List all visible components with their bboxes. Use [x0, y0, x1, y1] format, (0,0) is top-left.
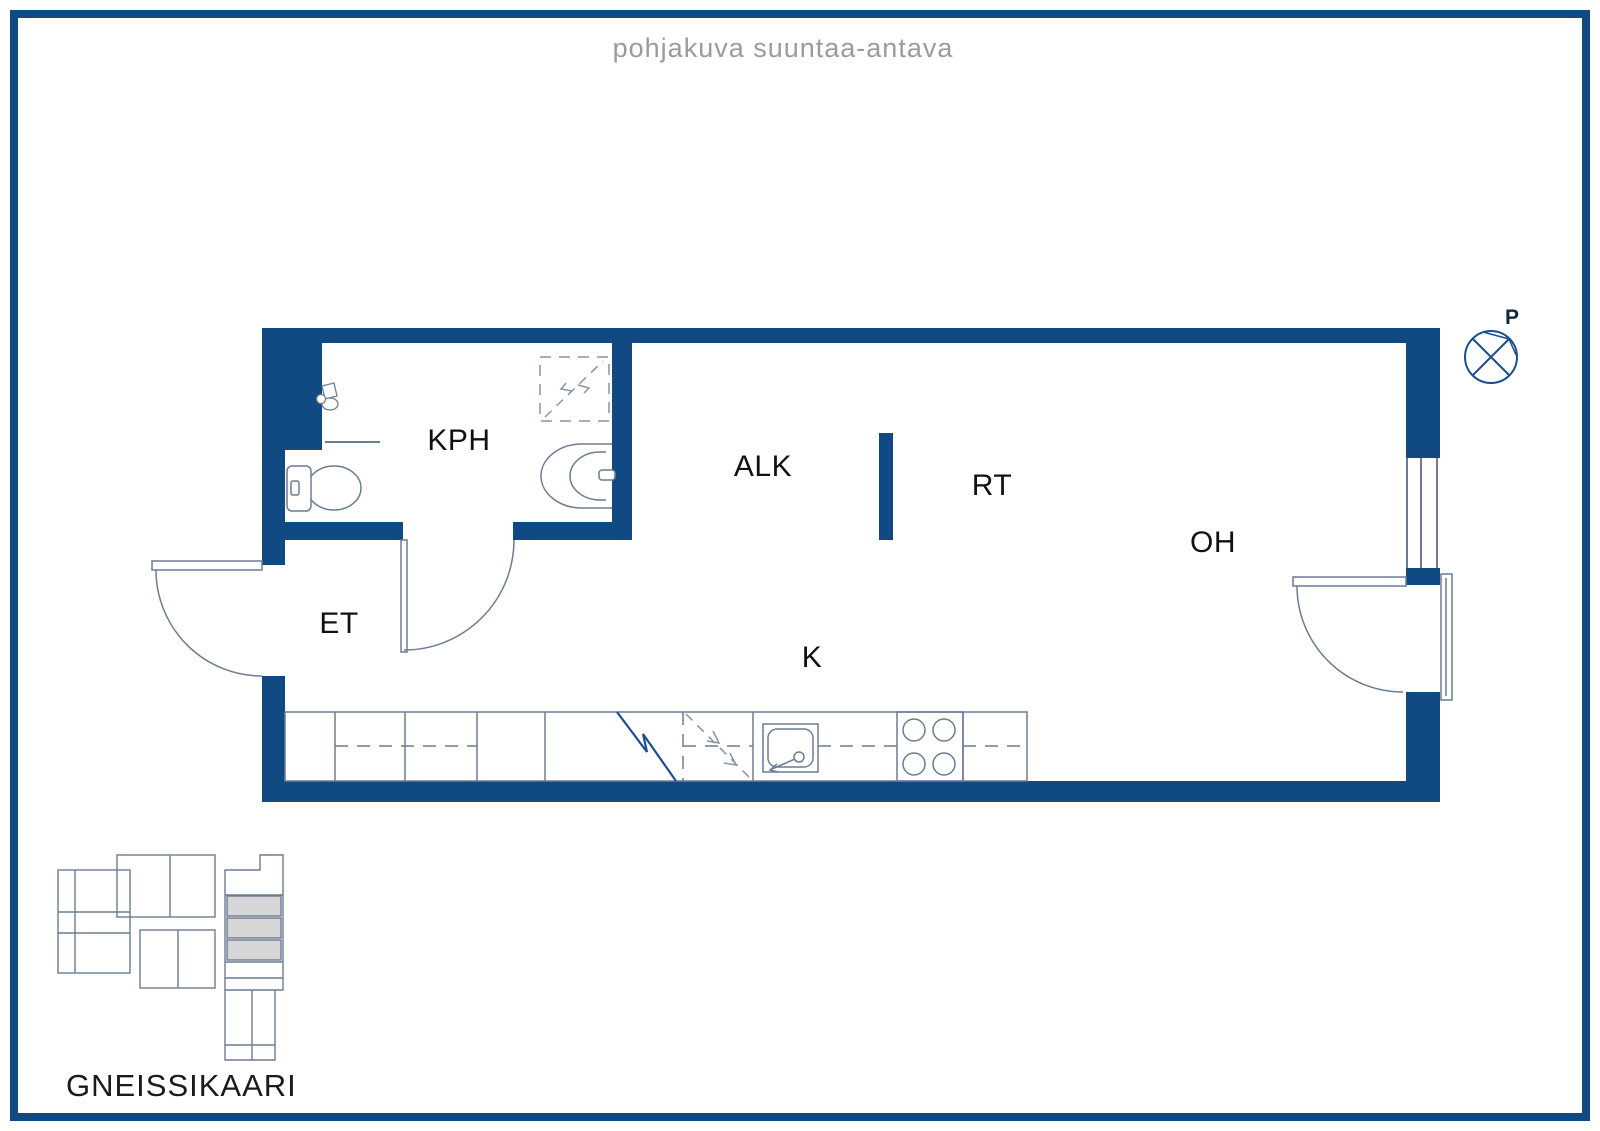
- room-label-k: K: [802, 641, 823, 675]
- walls: [262, 328, 1440, 802]
- wall-alk-divider: [879, 433, 893, 540]
- room-label-kph: KPH: [427, 424, 490, 458]
- window: [1407, 458, 1437, 568]
- wall-right-mid: [1406, 568, 1440, 585]
- room-label-rt: RT: [972, 469, 1012, 503]
- wall-bottom: [262, 781, 1440, 802]
- wall-kph-east: [612, 343, 632, 540]
- room-label-alk: ALK: [734, 450, 792, 484]
- wall-left-upper: [262, 450, 285, 565]
- site-highlight: [227, 918, 281, 938]
- kitchen-sink-icon: [763, 724, 818, 772]
- kitchen-counter: [285, 712, 1027, 781]
- floor-plan: [0, 0, 1600, 1131]
- washbasin-icon: [541, 444, 615, 508]
- wall-kph-west-pillar: [262, 343, 322, 450]
- compass-north-label: P: [1505, 306, 1519, 330]
- site-highlight: [227, 896, 281, 916]
- fridge-break-line: [617, 712, 676, 781]
- wall-right-bottom: [1406, 692, 1440, 802]
- bathroom-door: [401, 540, 514, 652]
- entrance-door: [152, 561, 262, 676]
- compass-icon: [1465, 331, 1517, 383]
- site-highlight: [227, 940, 281, 960]
- room-label-oh: OH: [1190, 526, 1236, 560]
- wall-kph-south-left: [262, 522, 403, 540]
- toilet-icon: [287, 466, 361, 511]
- wall-right-top: [1406, 343, 1440, 458]
- stove-icon: [897, 712, 963, 781]
- balcony-door: [1293, 574, 1452, 700]
- site-plan-outline: [58, 855, 283, 1060]
- wall-top: [262, 328, 1440, 343]
- street-name-label: GNEISSIKAARI: [66, 1068, 297, 1104]
- shower-icon: [540, 357, 609, 421]
- room-label-et: ET: [319, 607, 358, 641]
